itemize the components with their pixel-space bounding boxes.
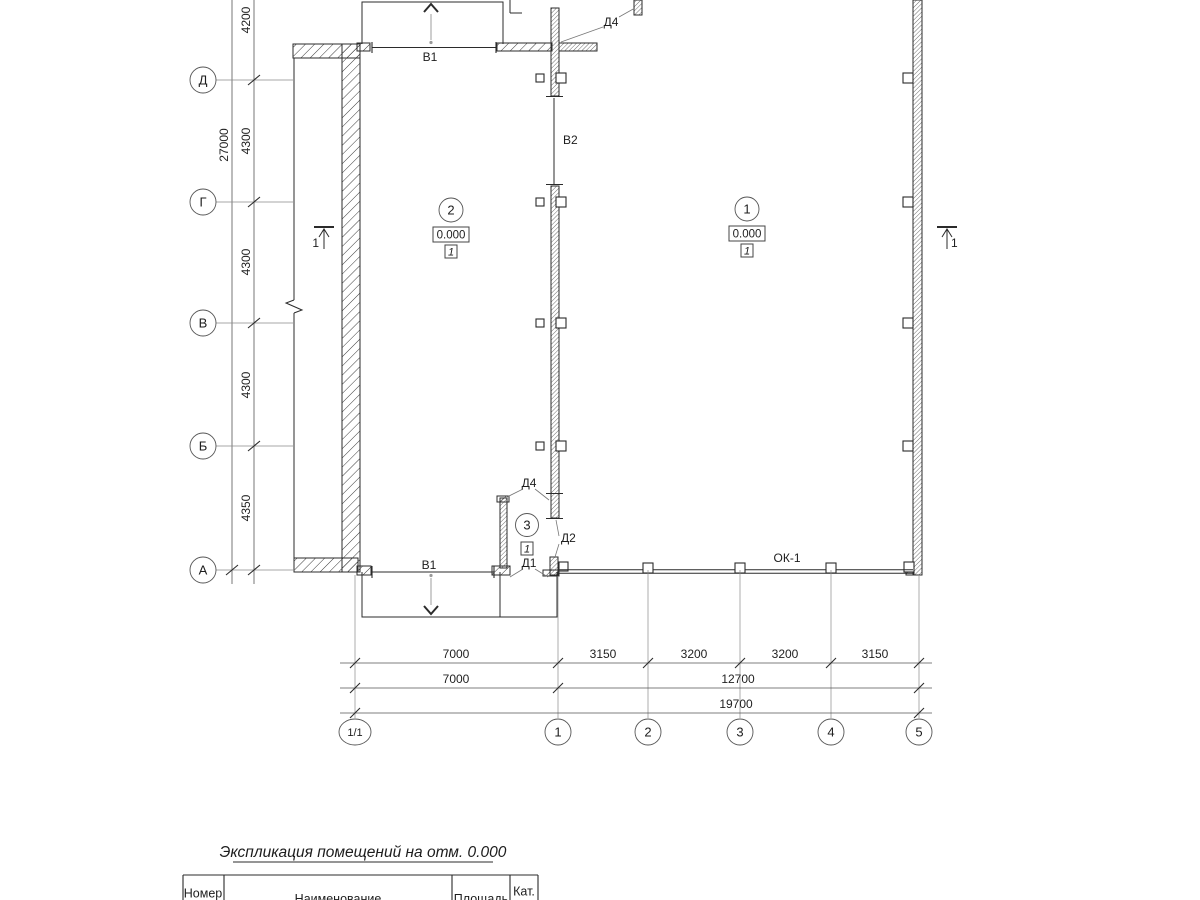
wall-bottom-cap-left <box>294 558 358 572</box>
section-left-number: 1 <box>312 236 319 250</box>
pilaster <box>556 318 566 328</box>
axis-label: Б <box>199 439 208 454</box>
pilaster <box>904 562 914 572</box>
floor-plan-canvas: В1 В1 В2 Д4 Д4 Д2 Д1 ОК-1 2 0.000 1 1 0.… <box>0 0 1200 900</box>
leader-line <box>619 8 635 17</box>
pilaster <box>556 441 566 451</box>
dim-text: 3200 <box>681 647 708 661</box>
axis-label: А <box>199 563 208 578</box>
wall-d4 <box>559 43 597 51</box>
leader-line <box>561 27 603 42</box>
openings: В1 В1 В2 Д4 Д4 Д2 Д1 ОК-1 <box>362 0 913 617</box>
column <box>536 442 544 450</box>
pilaster <box>903 318 913 328</box>
porch-bottom-outline <box>362 572 557 617</box>
wall-d4-stub <box>634 0 642 15</box>
room3-wall-left <box>500 498 507 568</box>
pilaster <box>903 73 913 83</box>
leader-line <box>510 569 523 577</box>
axis-label: 1/1 <box>347 727 362 739</box>
pilaster <box>903 197 913 207</box>
room1-category: 1 <box>744 246 750 258</box>
leader-line <box>555 544 559 557</box>
room1-number: 1 <box>743 202 750 217</box>
room3-category: 1 <box>524 544 530 556</box>
axis-label: 1 <box>554 725 561 740</box>
wall-top <box>497 43 552 51</box>
jamb <box>357 43 370 51</box>
room-schedule: Экспликация помещений на отм. 0.000 Номе… <box>183 844 538 900</box>
column <box>536 319 544 327</box>
dim-text: 7000 <box>443 647 470 661</box>
bottom-axis-grid: 7000 3150 3200 3200 3150 7000 12700 1970… <box>339 570 932 745</box>
section-right-number: 1 <box>951 236 958 250</box>
leader-line <box>535 489 549 500</box>
room2-category: 1 <box>448 247 454 259</box>
table-header: Номер <box>184 887 223 900</box>
columns <box>536 73 914 572</box>
dim-text: 4350 <box>239 494 253 521</box>
pilaster <box>556 73 566 83</box>
dim-text: 12700 <box>721 672 755 686</box>
pilaster <box>556 197 566 207</box>
schedule-title: Экспликация помещений на отм. 0.000 <box>220 844 507 861</box>
column <box>536 198 544 206</box>
floor-plan-sheet: В1 В1 В2 Д4 Д4 Д2 Д1 ОК-1 2 0.000 1 1 0.… <box>0 0 1200 900</box>
room1-elevation: 0.000 <box>733 229 762 241</box>
dim-text: 4200 <box>239 6 253 33</box>
window-label: ОК-1 <box>774 551 801 565</box>
leader-line <box>556 520 559 536</box>
room3-number: 3 <box>523 518 530 533</box>
axis-label: 2 <box>644 725 651 740</box>
axis-label: Г <box>199 195 206 210</box>
jamb <box>357 566 371 575</box>
wall-right <box>913 0 922 575</box>
door-d2-label: Д2 <box>561 531 576 545</box>
jamb <box>492 566 510 575</box>
left-axis-grid: Д Г В Б А 4200 4300 4300 4300 4350 27000 <box>190 0 295 584</box>
dim-text: 4300 <box>239 248 253 275</box>
column <box>536 74 544 82</box>
table-header: Площадь <box>454 892 508 900</box>
door-d4-room3-label: Д4 <box>522 476 537 490</box>
dim-text: 7000 <box>443 672 470 686</box>
gate-middle-label: В2 <box>563 133 578 147</box>
dim-text: 4300 <box>239 127 253 154</box>
walls <box>286 0 922 576</box>
axis-label: 3 <box>736 725 743 740</box>
porch-top-outline <box>362 2 503 44</box>
room2-number: 2 <box>447 203 454 218</box>
axis-label: Д <box>199 73 208 88</box>
leader-line <box>507 489 523 497</box>
section-marks: 1 1 <box>312 227 958 250</box>
axis-label: 5 <box>915 725 922 740</box>
door-d4-top-label: Д4 <box>604 15 619 29</box>
axis-label: 4 <box>827 725 834 740</box>
arrow-base-dot <box>429 41 432 44</box>
room2-elevation: 0.000 <box>437 230 466 242</box>
door-d1-label: Д1 <box>522 556 537 570</box>
overall-dim-text: 27000 <box>217 128 231 162</box>
wall-middle-lower <box>551 186 559 518</box>
gate-top-label: В1 <box>423 50 438 64</box>
dim-text: 19700 <box>719 697 753 711</box>
gate-bottom-label: В1 <box>422 558 437 572</box>
break-symbol <box>286 300 302 313</box>
wall-left <box>342 44 360 572</box>
up-arrow-icon <box>424 4 438 12</box>
down-arrow-icon <box>424 606 438 614</box>
dim-text: 4300 <box>239 371 253 398</box>
axis-label: В <box>199 316 208 331</box>
table-header: Наименование <box>295 892 382 900</box>
dim-text: 3150 <box>590 647 617 661</box>
table-header: Кат. <box>513 885 535 899</box>
arrow-base-dot <box>429 574 432 577</box>
dim-text: 3200 <box>772 647 799 661</box>
pilaster <box>903 441 913 451</box>
dim-text: 3150 <box>862 647 889 661</box>
room-markers: 2 0.000 1 1 0.000 1 3 1 <box>433 197 765 556</box>
